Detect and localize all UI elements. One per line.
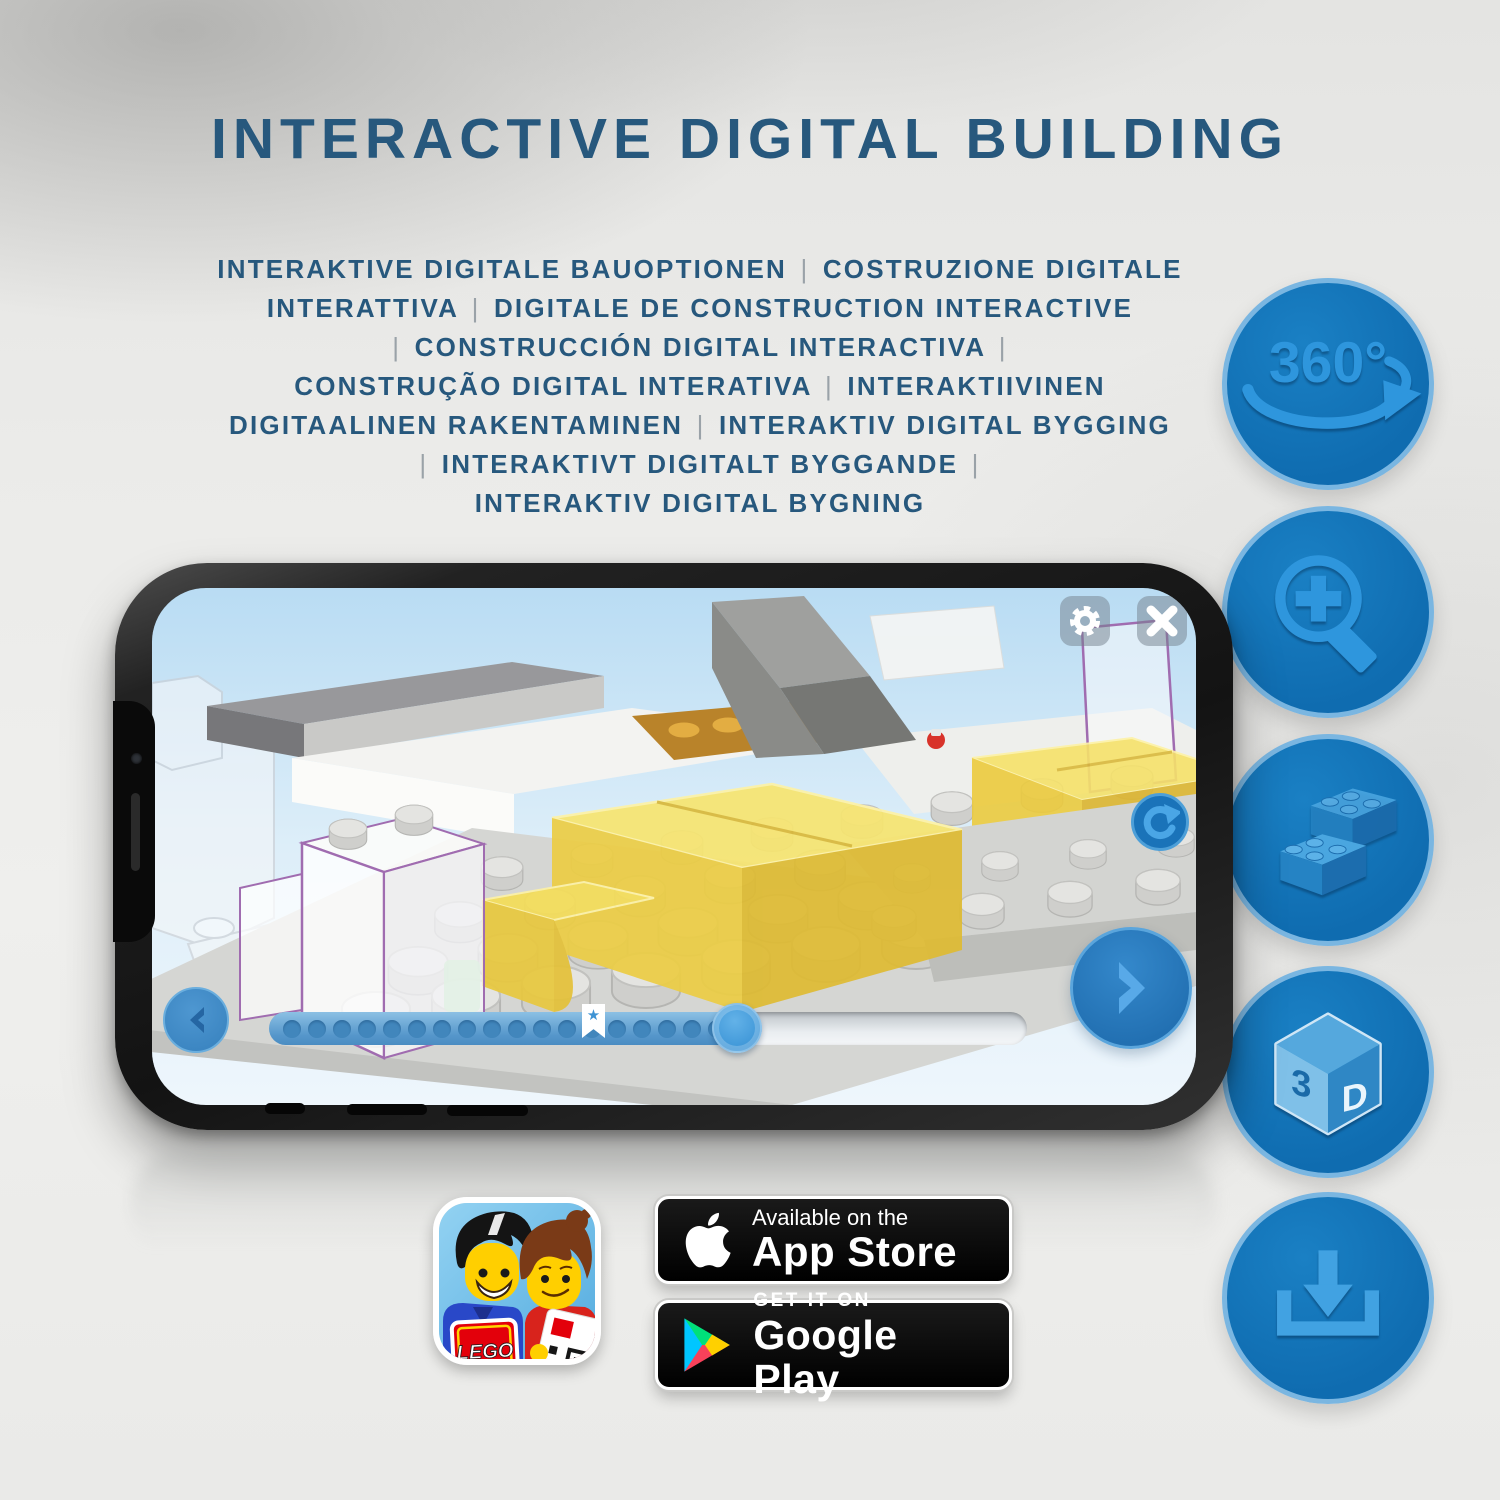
progress-dot [433, 1020, 451, 1038]
google-play-name: Google Play [753, 1313, 993, 1401]
progress-dot [558, 1020, 576, 1038]
progress-fill [269, 1012, 762, 1045]
progress-dot [408, 1020, 426, 1038]
subtitle-line: | INTERAKTIVT DIGITALT BYGGANDE | [195, 445, 1205, 484]
subtitle-line: INTERAKTIVE DIGITALE BAUOPTIONEN | COSTR… [195, 250, 1205, 289]
progress-dots [283, 1020, 751, 1038]
progress-dot [383, 1020, 401, 1038]
feature-360-rotation: 360° [1222, 278, 1434, 490]
progress-dot [358, 1020, 376, 1038]
feature-3d-view: 3 D [1222, 966, 1434, 1178]
360-degree-label: 360° [1269, 331, 1387, 395]
subtitle-line: CONSTRUÇÃO DIGITAL INTERATIVA | INTERAKT… [195, 367, 1205, 406]
svg-text:3: 3 [1291, 1061, 1311, 1106]
page: INTERACTIVE DIGITAL BUILDING INTERAKTIVE… [0, 0, 1500, 1500]
progress-dot [308, 1020, 326, 1038]
app-store-name: App Store [752, 1230, 957, 1274]
feature-brick-assembly [1222, 734, 1434, 946]
chevron-left-icon [179, 1003, 213, 1037]
next-step-button[interactable] [1070, 927, 1192, 1049]
progress-dot [283, 1020, 301, 1038]
phone-screen: ★ [152, 588, 1196, 1105]
phone-volume-button [347, 1104, 427, 1115]
google-play-icon [680, 1314, 735, 1376]
feature-download [1222, 1192, 1434, 1404]
progress-dot [658, 1020, 676, 1038]
feature-zoom [1222, 506, 1434, 718]
previous-step-button[interactable] [163, 987, 229, 1053]
phone-power-button [265, 1103, 305, 1114]
rotate-icon [1140, 802, 1180, 842]
svg-text:D: D [1342, 1073, 1368, 1120]
gear-icon [1067, 603, 1103, 639]
subtitle-line: INTERATTIVA | DIGITALE DE CONSTRUCTION I… [195, 289, 1205, 328]
magnifier-plus-icon [1280, 561, 1378, 675]
lego-app-icon[interactable]: LEGO [433, 1197, 601, 1365]
progress-thumb[interactable] [712, 1003, 762, 1053]
chevron-right-icon [1099, 956, 1163, 1020]
progress-dot [508, 1020, 526, 1038]
settings-button[interactable] [1060, 596, 1110, 646]
front-camera [131, 753, 142, 764]
close-icon [1144, 603, 1180, 639]
progress-dot [333, 1020, 351, 1038]
subtitle-line: INTERAKTIV DIGITAL BYGNING [195, 484, 1205, 523]
page-title: INTERACTIVE DIGITAL BUILDING [0, 106, 1500, 172]
subtitle-line: DIGITAALINEN RAKENTAMINEN | INTERAKTIV D… [195, 406, 1205, 445]
progress-bar[interactable]: ★ [269, 1012, 1027, 1045]
progress-dot [633, 1020, 651, 1038]
lego-bricks-icon [1280, 789, 1396, 896]
phone-notch [113, 701, 155, 942]
3d-cube-icon: 3 D [1277, 1015, 1380, 1133]
app-store-badge[interactable]: Available on the App Store [655, 1196, 1012, 1284]
subtitle-line: | CONSTRUCCIÓN DIGITAL INTERACTIVA | [195, 328, 1205, 367]
svg-text:LEGO: LEGO [456, 1340, 514, 1359]
progress-dot [458, 1020, 476, 1038]
download-icon [1284, 1250, 1372, 1328]
progress-dot [683, 1020, 701, 1038]
google-play-badge[interactable]: GET IT ON Google Play [655, 1300, 1012, 1390]
progress-dot [483, 1020, 501, 1038]
multilingual-subtitle: INTERAKTIVE DIGITALE BAUOPTIONEN | COSTR… [195, 250, 1205, 523]
apple-logo-icon [682, 1209, 734, 1271]
close-button[interactable] [1137, 596, 1187, 646]
progress-dot [608, 1020, 626, 1038]
rotate-view-button[interactable] [1131, 793, 1189, 851]
phone-mockup: ★ [115, 563, 1233, 1130]
phone-volume-button [447, 1105, 528, 1116]
app-store-tagline: Available on the [752, 1206, 957, 1230]
lego-logo: LEGO [451, 1319, 518, 1359]
google-play-tagline: GET IT ON [753, 1289, 993, 1313]
progress-dot [533, 1020, 551, 1038]
earpiece-speaker [131, 793, 140, 871]
